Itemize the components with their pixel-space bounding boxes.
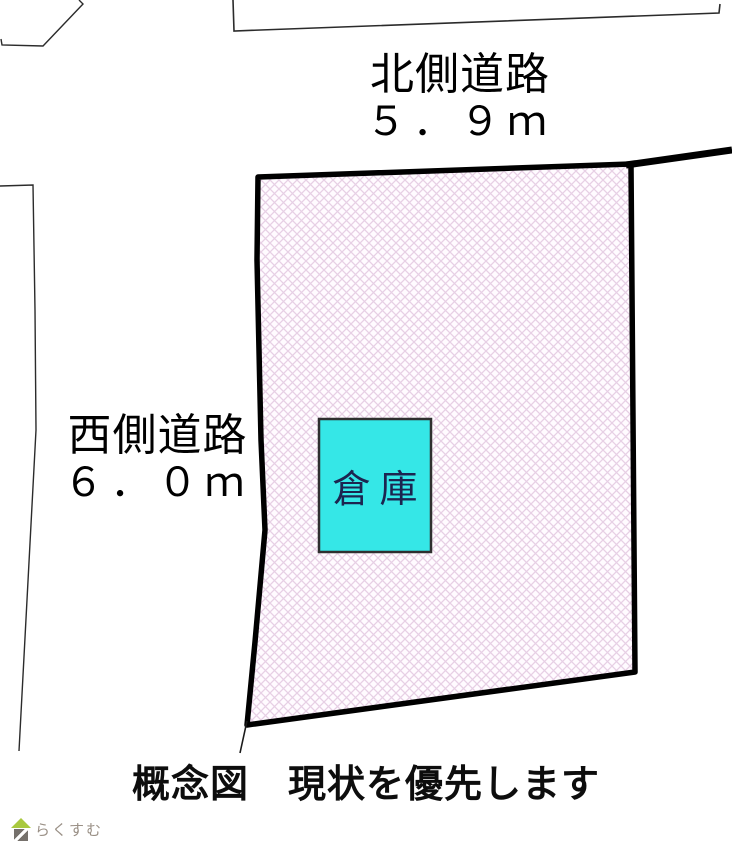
rakusumu-logo: らくすむ <box>11 818 103 842</box>
north-road-label: 北側道路 ５．９ｍ <box>330 52 590 143</box>
logo-text: らくすむ <box>35 823 103 838</box>
road-edge-line <box>626 150 732 165</box>
neighbor-parcel-outline-left <box>0 185 36 751</box>
land-parcel-shape <box>247 164 635 725</box>
house-roof-shape <box>11 818 31 828</box>
west-road-label: 西側道路 ６．０ｍ <box>40 413 275 504</box>
house-logo-icon <box>11 818 31 842</box>
neighbor-parcel-outline-topleft <box>1 0 83 46</box>
north-road-width: ５．９ｍ <box>330 101 590 143</box>
plot-diagram-canvas: 北側道路 ５．９ｍ 西側道路 ６．０ｍ 倉庫 概念図 現状を優先します らくすむ <box>0 0 732 850</box>
house-body-shape <box>14 829 28 841</box>
neighbor-parcel-outline-top <box>233 0 720 31</box>
warehouse-label: 倉庫 <box>319 419 431 552</box>
boundary-tick-line <box>240 721 247 753</box>
west-road-name: 西側道路 <box>40 413 275 459</box>
caption-text: 概念図 現状を優先します <box>0 753 732 808</box>
west-road-width: ６．０ｍ <box>40 462 275 504</box>
north-road-name: 北側道路 <box>330 52 590 98</box>
